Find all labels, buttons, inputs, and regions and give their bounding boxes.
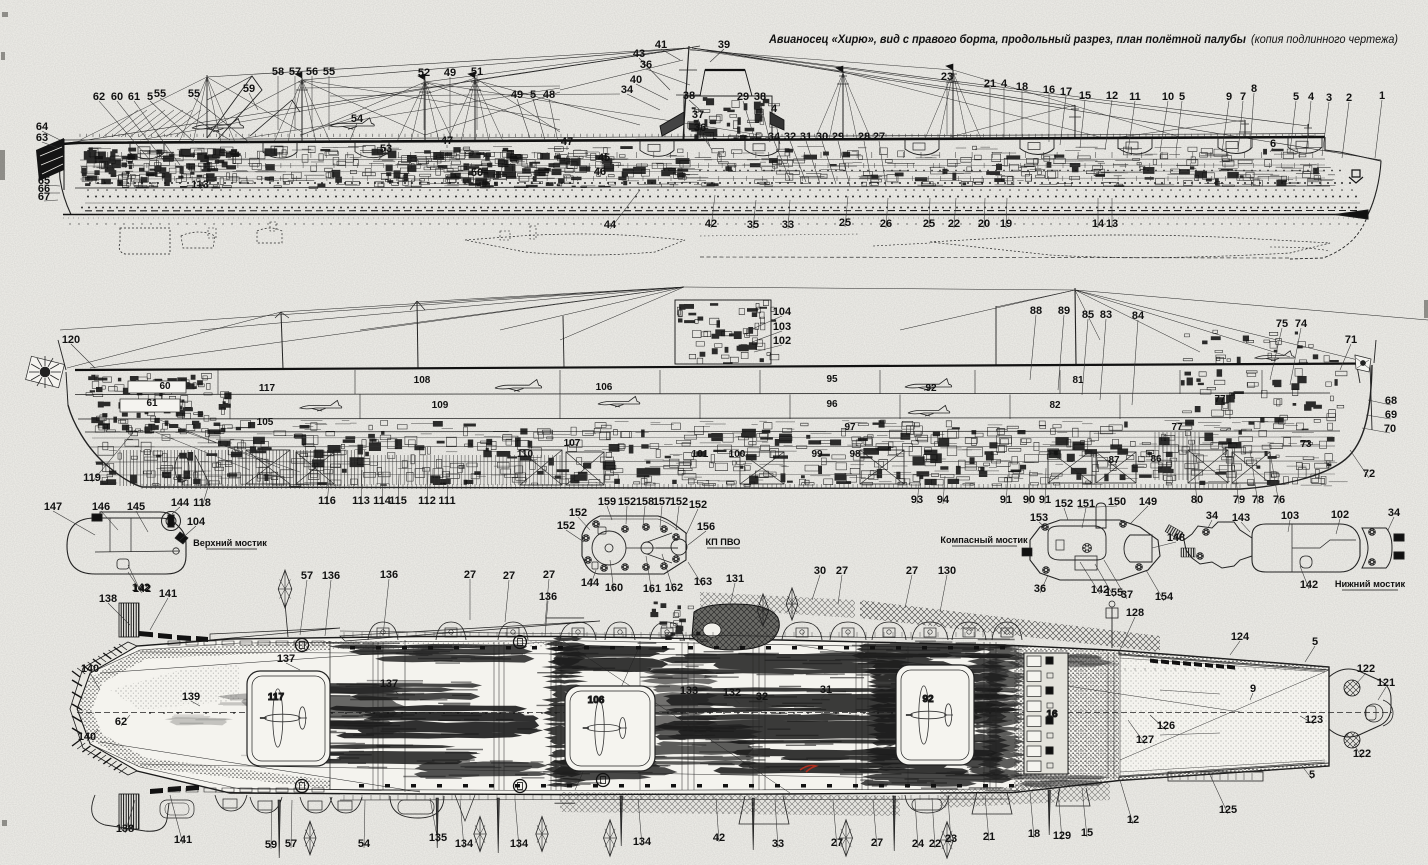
svg-text:135: 135 xyxy=(429,832,447,844)
svg-text:58: 58 xyxy=(272,66,284,78)
svg-text:36: 36 xyxy=(1034,583,1046,595)
svg-text:68: 68 xyxy=(1385,395,1397,407)
svg-text:161: 161 xyxy=(643,583,661,595)
svg-text:32: 32 xyxy=(784,131,796,143)
svg-text:83: 83 xyxy=(1100,309,1112,321)
svg-text:28: 28 xyxy=(858,131,870,143)
svg-text:62: 62 xyxy=(93,91,105,103)
svg-text:16: 16 xyxy=(1046,709,1058,720)
svg-text:27: 27 xyxy=(836,565,848,577)
svg-text:55: 55 xyxy=(154,88,166,100)
svg-text:152: 152 xyxy=(618,496,636,508)
svg-text:36: 36 xyxy=(640,59,652,71)
svg-text:150: 150 xyxy=(1108,496,1126,508)
svg-text:121: 121 xyxy=(1377,677,1395,689)
svg-text:5: 5 xyxy=(1293,91,1299,103)
svg-text:33: 33 xyxy=(772,838,784,850)
svg-text:152: 152 xyxy=(689,499,707,511)
svg-text:8: 8 xyxy=(1251,83,1257,95)
svg-text:70: 70 xyxy=(1384,423,1396,435)
svg-text:111: 111 xyxy=(438,495,455,507)
svg-text:21: 21 xyxy=(984,78,996,90)
svg-text:117: 117 xyxy=(259,383,276,394)
svg-text:136: 136 xyxy=(322,570,340,582)
svg-text:62: 62 xyxy=(115,716,127,728)
svg-text:106: 106 xyxy=(588,695,605,706)
svg-text:131: 131 xyxy=(726,573,744,585)
svg-text:113: 113 xyxy=(352,495,370,507)
svg-text:137: 137 xyxy=(277,653,295,665)
svg-text:162: 162 xyxy=(665,582,683,594)
svg-text:157: 157 xyxy=(653,496,671,508)
svg-text:55: 55 xyxy=(188,88,200,100)
svg-text:49: 49 xyxy=(444,67,456,79)
svg-text:Нижний мостик: Нижний мостик xyxy=(1335,579,1406,589)
svg-text:25: 25 xyxy=(923,218,935,230)
svg-text:128: 128 xyxy=(1126,607,1144,619)
svg-text:77: 77 xyxy=(1171,422,1183,433)
svg-text:94: 94 xyxy=(937,494,950,506)
svg-text:110: 110 xyxy=(517,449,534,460)
svg-text:88: 88 xyxy=(1030,305,1042,317)
svg-text:124: 124 xyxy=(1231,631,1250,643)
svg-text:142: 142 xyxy=(1300,579,1318,591)
svg-text:86: 86 xyxy=(1150,454,1162,465)
svg-text:38: 38 xyxy=(754,91,766,103)
svg-text:138: 138 xyxy=(116,823,134,835)
svg-text:23: 23 xyxy=(941,71,953,83)
svg-text:91: 91 xyxy=(1000,494,1012,506)
svg-text:77: 77 xyxy=(1214,394,1226,405)
svg-text:42: 42 xyxy=(713,832,725,844)
svg-text:78: 78 xyxy=(1252,494,1264,506)
svg-text:147: 147 xyxy=(44,501,62,513)
svg-text:34: 34 xyxy=(1388,507,1401,519)
svg-text:82: 82 xyxy=(1049,400,1061,411)
svg-text:15: 15 xyxy=(1079,90,1091,102)
svg-text:50: 50 xyxy=(471,167,483,179)
svg-text:КП ПВО: КП ПВО xyxy=(706,537,741,547)
svg-text:103: 103 xyxy=(773,321,791,333)
svg-text:136: 136 xyxy=(380,569,398,581)
svg-text:1: 1 xyxy=(1379,90,1385,102)
svg-text:134: 134 xyxy=(455,838,474,850)
svg-text:113: 113 xyxy=(191,179,209,191)
svg-text:152: 152 xyxy=(557,520,575,532)
svg-text:42: 42 xyxy=(705,218,717,230)
svg-text:95: 95 xyxy=(826,374,838,385)
svg-text:130: 130 xyxy=(938,565,956,577)
svg-text:22: 22 xyxy=(929,838,941,850)
svg-text:67: 67 xyxy=(38,191,50,203)
svg-text:133: 133 xyxy=(680,685,698,697)
svg-text:12: 12 xyxy=(1127,814,1139,826)
svg-text:18: 18 xyxy=(1028,828,1040,840)
svg-text:9: 9 xyxy=(1226,91,1232,103)
svg-text:134: 134 xyxy=(510,838,529,850)
svg-text:143: 143 xyxy=(1232,512,1250,524)
svg-text:7: 7 xyxy=(1240,91,1246,103)
svg-text:46: 46 xyxy=(594,166,606,178)
svg-text:34: 34 xyxy=(768,131,781,143)
svg-text:154: 154 xyxy=(1155,591,1174,603)
svg-text:41: 41 xyxy=(655,39,667,51)
svg-text:35: 35 xyxy=(747,219,759,231)
svg-text:125: 125 xyxy=(1219,804,1237,816)
svg-text:36: 36 xyxy=(694,122,706,134)
svg-text:126: 126 xyxy=(1157,720,1175,732)
svg-text:100: 100 xyxy=(729,449,746,460)
svg-text:51: 51 xyxy=(471,66,483,78)
svg-text:20: 20 xyxy=(978,218,990,230)
svg-text:144: 144 xyxy=(581,577,600,589)
svg-text:117: 117 xyxy=(268,692,285,703)
svg-text:97: 97 xyxy=(844,422,856,433)
svg-text:Компасный мостик: Компасный мостик xyxy=(940,535,1028,545)
svg-text:102: 102 xyxy=(773,335,791,347)
svg-text:5: 5 xyxy=(1312,636,1318,648)
svg-text:163: 163 xyxy=(694,576,712,588)
svg-text:120: 120 xyxy=(62,334,80,346)
svg-text:31: 31 xyxy=(800,131,812,143)
svg-text:107: 107 xyxy=(564,438,581,449)
svg-text:115: 115 xyxy=(389,495,407,507)
svg-text:37: 37 xyxy=(1121,589,1133,601)
svg-text:11: 11 xyxy=(1129,91,1141,103)
svg-text:29: 29 xyxy=(832,131,844,143)
svg-text:73: 73 xyxy=(1300,439,1312,450)
svg-text:53: 53 xyxy=(380,143,392,155)
svg-text:6: 6 xyxy=(1270,138,1276,150)
svg-text:44: 44 xyxy=(604,219,617,231)
svg-text:2: 2 xyxy=(1346,92,1352,104)
svg-text:52: 52 xyxy=(418,67,430,79)
svg-text:69: 69 xyxy=(1385,409,1397,421)
svg-text:89: 89 xyxy=(1058,305,1070,317)
svg-text:91: 91 xyxy=(1039,494,1051,506)
svg-text:61: 61 xyxy=(146,398,158,409)
svg-text:99: 99 xyxy=(811,449,823,460)
svg-text:136: 136 xyxy=(539,591,557,603)
svg-text:49: 49 xyxy=(511,89,523,101)
svg-text:47: 47 xyxy=(561,136,573,148)
svg-text:13: 13 xyxy=(1106,218,1118,230)
svg-text:112: 112 xyxy=(418,495,436,507)
svg-text:84: 84 xyxy=(1132,310,1145,322)
svg-text:159: 159 xyxy=(598,496,616,508)
svg-text:122: 122 xyxy=(1353,748,1371,760)
svg-text:92: 92 xyxy=(925,383,937,394)
svg-text:5: 5 xyxy=(1179,91,1185,103)
svg-text:75: 75 xyxy=(1276,318,1288,330)
svg-text:105: 105 xyxy=(257,417,274,428)
svg-text:37: 37 xyxy=(692,109,704,121)
svg-text:142: 142 xyxy=(133,583,151,595)
svg-text:48: 48 xyxy=(543,89,555,101)
svg-text:25: 25 xyxy=(839,217,851,229)
svg-text:27: 27 xyxy=(906,565,918,577)
svg-text:34: 34 xyxy=(1206,510,1219,522)
svg-text:27: 27 xyxy=(871,837,883,849)
svg-text:123: 123 xyxy=(1305,714,1323,726)
svg-text:106: 106 xyxy=(596,382,613,393)
svg-text:27: 27 xyxy=(543,569,555,581)
svg-text:152: 152 xyxy=(1055,498,1073,510)
svg-text:59: 59 xyxy=(243,83,255,95)
svg-text:5: 5 xyxy=(530,89,536,101)
svg-text:55: 55 xyxy=(323,66,335,78)
svg-text:54: 54 xyxy=(351,113,364,125)
svg-text:76: 76 xyxy=(1273,494,1285,506)
svg-text:24: 24 xyxy=(912,838,925,850)
svg-text:34: 34 xyxy=(621,84,634,96)
svg-text:151: 151 xyxy=(1077,498,1095,510)
svg-text:23: 23 xyxy=(945,833,957,845)
svg-text:31: 31 xyxy=(820,684,832,696)
svg-text:9: 9 xyxy=(1250,683,1256,695)
svg-text:60: 60 xyxy=(111,91,123,103)
svg-text:38: 38 xyxy=(683,90,695,102)
svg-text:27: 27 xyxy=(503,570,515,582)
svg-text:56: 56 xyxy=(306,66,318,78)
svg-text:18: 18 xyxy=(1016,81,1028,93)
svg-text:4: 4 xyxy=(1001,78,1008,90)
svg-text:15: 15 xyxy=(1081,827,1093,839)
svg-text:3: 3 xyxy=(1326,92,1332,104)
svg-text:39: 39 xyxy=(718,39,730,51)
svg-text:103: 103 xyxy=(1281,510,1299,522)
svg-text:27: 27 xyxy=(873,131,885,143)
svg-text:109: 109 xyxy=(432,400,449,411)
svg-text:30: 30 xyxy=(816,131,828,143)
svg-text:141: 141 xyxy=(174,834,192,846)
svg-text:27: 27 xyxy=(831,837,843,849)
svg-text:4: 4 xyxy=(771,103,778,115)
svg-text:59: 59 xyxy=(265,839,277,851)
svg-text:134: 134 xyxy=(633,836,652,848)
svg-text:98: 98 xyxy=(849,449,861,460)
svg-text:14: 14 xyxy=(1092,218,1105,230)
svg-text:85: 85 xyxy=(1082,309,1094,321)
svg-text:Верхний мостик: Верхний мостик xyxy=(193,538,267,548)
svg-text:156: 156 xyxy=(697,521,715,533)
svg-text:19: 19 xyxy=(1000,218,1012,230)
svg-text:Авианосец «Хирю», вид с правог: Авианосец «Хирю», вид с правого борта, п… xyxy=(768,32,1246,46)
svg-text:93: 93 xyxy=(911,494,923,506)
svg-text:122: 122 xyxy=(1357,663,1375,675)
svg-text:45: 45 xyxy=(598,152,610,164)
svg-text:57: 57 xyxy=(285,838,297,850)
svg-text:102: 102 xyxy=(1331,509,1349,521)
svg-text:145: 145 xyxy=(127,501,145,513)
svg-text:17: 17 xyxy=(1060,86,1072,98)
svg-text:141: 141 xyxy=(159,588,177,600)
svg-text:63: 63 xyxy=(36,132,48,144)
svg-text:61: 61 xyxy=(128,91,140,103)
svg-text:5: 5 xyxy=(1309,769,1315,781)
svg-text:60: 60 xyxy=(159,381,171,392)
svg-text:104: 104 xyxy=(773,306,792,318)
svg-text:144: 144 xyxy=(171,497,190,509)
svg-text:92: 92 xyxy=(922,694,934,705)
svg-text:146: 146 xyxy=(92,501,110,513)
svg-text:72: 72 xyxy=(1363,468,1375,480)
svg-text:116: 116 xyxy=(318,495,336,507)
svg-text:71: 71 xyxy=(1345,334,1357,346)
svg-text:54: 54 xyxy=(358,838,371,850)
svg-text:(копия подлинного чертежа): (копия подлинного чертежа) xyxy=(1251,32,1398,46)
svg-text:129: 129 xyxy=(1053,830,1071,842)
svg-text:32: 32 xyxy=(756,691,768,703)
svg-text:158: 158 xyxy=(636,496,654,508)
svg-text:29: 29 xyxy=(737,91,749,103)
svg-text:87: 87 xyxy=(1108,455,1120,466)
svg-text:4: 4 xyxy=(1308,91,1315,103)
svg-text:137: 137 xyxy=(380,678,398,690)
svg-text:104: 104 xyxy=(187,516,206,528)
svg-text:119: 119 xyxy=(83,472,101,484)
svg-text:152: 152 xyxy=(670,496,688,508)
svg-text:27: 27 xyxy=(464,569,476,581)
svg-text:108: 108 xyxy=(414,375,431,386)
svg-text:140: 140 xyxy=(78,731,96,743)
svg-text:138: 138 xyxy=(99,593,117,605)
svg-text:26: 26 xyxy=(880,218,892,230)
svg-text:79: 79 xyxy=(1233,494,1245,506)
svg-text:74: 74 xyxy=(1295,318,1308,330)
svg-text:81: 81 xyxy=(1072,375,1084,386)
svg-text:139: 139 xyxy=(182,691,200,703)
svg-text:10: 10 xyxy=(1162,91,1174,103)
svg-text:80: 80 xyxy=(1191,494,1203,506)
svg-text:132: 132 xyxy=(723,687,741,699)
svg-text:57: 57 xyxy=(301,570,313,582)
svg-text:140: 140 xyxy=(81,663,99,675)
svg-text:5: 5 xyxy=(147,91,153,103)
svg-text:118: 118 xyxy=(193,497,211,509)
svg-text:16: 16 xyxy=(1043,84,1055,96)
svg-text:153: 153 xyxy=(1030,512,1048,524)
svg-text:12: 12 xyxy=(1106,90,1118,102)
svg-text:152: 152 xyxy=(569,507,587,519)
svg-text:90: 90 xyxy=(1023,494,1035,506)
svg-text:149: 149 xyxy=(1139,496,1157,508)
svg-text:96: 96 xyxy=(826,399,838,410)
svg-text:101: 101 xyxy=(692,449,709,460)
svg-text:47: 47 xyxy=(441,135,453,147)
svg-text:30: 30 xyxy=(814,565,826,577)
svg-text:160: 160 xyxy=(605,582,623,594)
svg-text:22: 22 xyxy=(948,218,960,230)
svg-text:127: 127 xyxy=(1136,734,1154,746)
svg-text:21: 21 xyxy=(983,831,995,843)
svg-text:33: 33 xyxy=(782,219,794,231)
svg-text:57: 57 xyxy=(289,66,301,78)
